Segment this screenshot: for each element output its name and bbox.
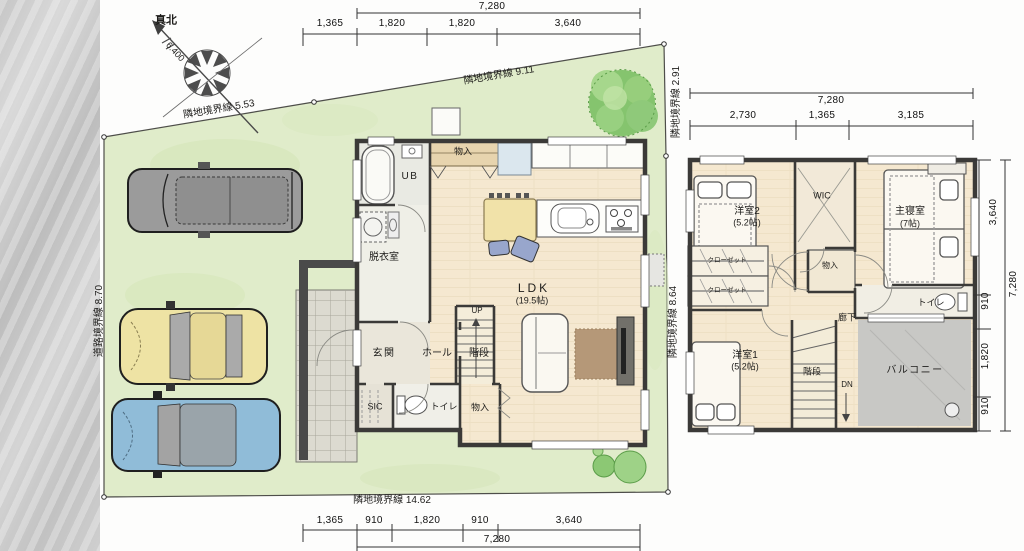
room-label-corridor: 廊下 [838, 314, 856, 323]
dim-label: 3,640 [989, 199, 999, 226]
dim-label: 910 [471, 516, 489, 526]
boundary-label-bottom: 隣地境界線 14.62 [353, 496, 431, 506]
room-label-bedroom2-size: (5.2帖) [733, 219, 761, 228]
car-blue [112, 391, 280, 478]
room-label-dressing: 脱衣室 [369, 253, 399, 263]
room-label-stairs-f1: 階段 [469, 349, 489, 359]
dim-label: 1,820 [981, 343, 991, 370]
tv-board [617, 317, 634, 385]
dim-label: 1,365 [809, 111, 836, 121]
dim-label: 1,820 [414, 516, 441, 526]
room-label-toilet-f1: トイレ [430, 403, 457, 412]
label-up: UP [471, 307, 482, 315]
room-label-bedroom2: 洋室2 [734, 207, 760, 217]
dim-label: 910 [981, 292, 991, 310]
dining-table [484, 193, 540, 263]
bed [884, 170, 964, 288]
dim-label: 1,365 [317, 516, 344, 526]
room-label-ub: UB [402, 172, 419, 182]
dim-label: 7,280 [484, 535, 511, 545]
rug [575, 329, 617, 379]
boundary-label-right-lower: 隣地境界線 8.64 [669, 286, 679, 358]
sofa [522, 314, 568, 392]
room-label-bedroom1-size: (5.2帖) [731, 363, 759, 372]
room-label-entrance: 玄関 [373, 349, 396, 359]
room-label-balcony: バルコニー [886, 366, 943, 376]
dim-label: 3,640 [555, 19, 582, 29]
room-label-bedroom1: 洋室1 [732, 351, 758, 361]
dim-label: 910 [365, 516, 383, 526]
site-floor-plan-drawing: 真北 6.400 隣地境界線 5.53 隣地境界線 9.11 隣地境界線 2.9… [0, 0, 1024, 551]
room-label-storage-bottom: 物入 [471, 404, 489, 413]
boundary-label-left: 道路境界線 8.70 [95, 285, 105, 357]
label-dn: DN [841, 381, 853, 389]
dim-label: 910 [981, 397, 991, 415]
room-label-ldk-size: (19.5帖) [516, 297, 549, 306]
room-label-wic: WIC [813, 192, 831, 201]
plan-canvas [0, 0, 1024, 551]
true-north-label: 真北 [155, 16, 177, 27]
room-label-closet1: クローゼット [708, 258, 747, 265]
dim-label: 3,185 [898, 111, 925, 121]
dim-label: 7,280 [1009, 271, 1019, 298]
dim-label: 7,280 [818, 96, 845, 106]
room-label-toilet-f2: トイレ [917, 299, 944, 308]
dim-label: 2,730 [730, 111, 757, 121]
room-label-stairs-f2: 階段 [803, 368, 821, 377]
room-label-closet2: クローゼット [708, 288, 747, 295]
room-label-ldk: LDK [518, 282, 550, 294]
dim-label: 3,640 [556, 516, 583, 526]
room-label-master: 主寝室 [895, 207, 925, 217]
car-yellow [120, 301, 267, 391]
closet [688, 246, 768, 306]
room-label-hall: ホール [422, 349, 452, 359]
dim-label: 1,820 [379, 19, 406, 29]
boundary-label-right-upper: 隣地境界線 2.91 [672, 66, 682, 138]
dim-label: 1,820 [449, 19, 476, 29]
floor2-plan [686, 156, 979, 434]
dim-label: 1,365 [317, 19, 344, 29]
room-label-sic: SIC [367, 403, 382, 412]
room-label-master-size: (7帖) [900, 220, 920, 229]
car-gray [128, 162, 302, 238]
room-label-storage-f2: 物入 [822, 262, 838, 270]
room-label-storage-top: 物入 [454, 148, 472, 157]
dim-label: 7,280 [479, 2, 506, 12]
